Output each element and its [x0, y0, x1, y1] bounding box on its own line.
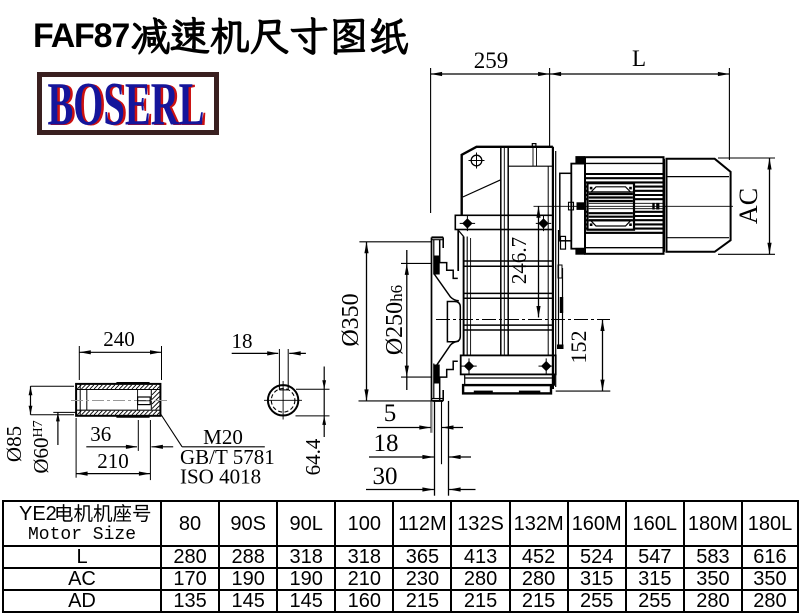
svg-text:240: 240 [103, 327, 135, 351]
svg-text:246.7: 246.7 [507, 237, 531, 284]
svg-text:259: 259 [474, 48, 509, 73]
svg-text:210: 210 [97, 449, 129, 473]
svg-text:Ø350: Ø350 [338, 293, 364, 346]
svg-text:18: 18 [374, 430, 399, 457]
svg-text:Ø250h6: Ø250h6 [382, 285, 408, 355]
svg-text:YE2: YE2 [19, 504, 57, 525]
svg-text:BOSERL: BOSERL [48, 77, 205, 127]
svg-text:30: 30 [373, 463, 398, 490]
svg-text:36: 36 [90, 422, 111, 446]
svg-text:18: 18 [232, 329, 253, 353]
svg-text:AC: AC [734, 188, 763, 224]
svg-text:L: L [632, 46, 646, 71]
svg-text:64.4: 64.4 [301, 438, 325, 475]
svg-text:152: 152 [566, 331, 591, 364]
svg-text:ISO 4018: ISO 4018 [180, 465, 261, 489]
svg-text:Ø60H7: Ø60H7 [29, 420, 53, 473]
svg-text:Ø85: Ø85 [2, 426, 26, 462]
svg-text:5: 5 [384, 400, 397, 427]
